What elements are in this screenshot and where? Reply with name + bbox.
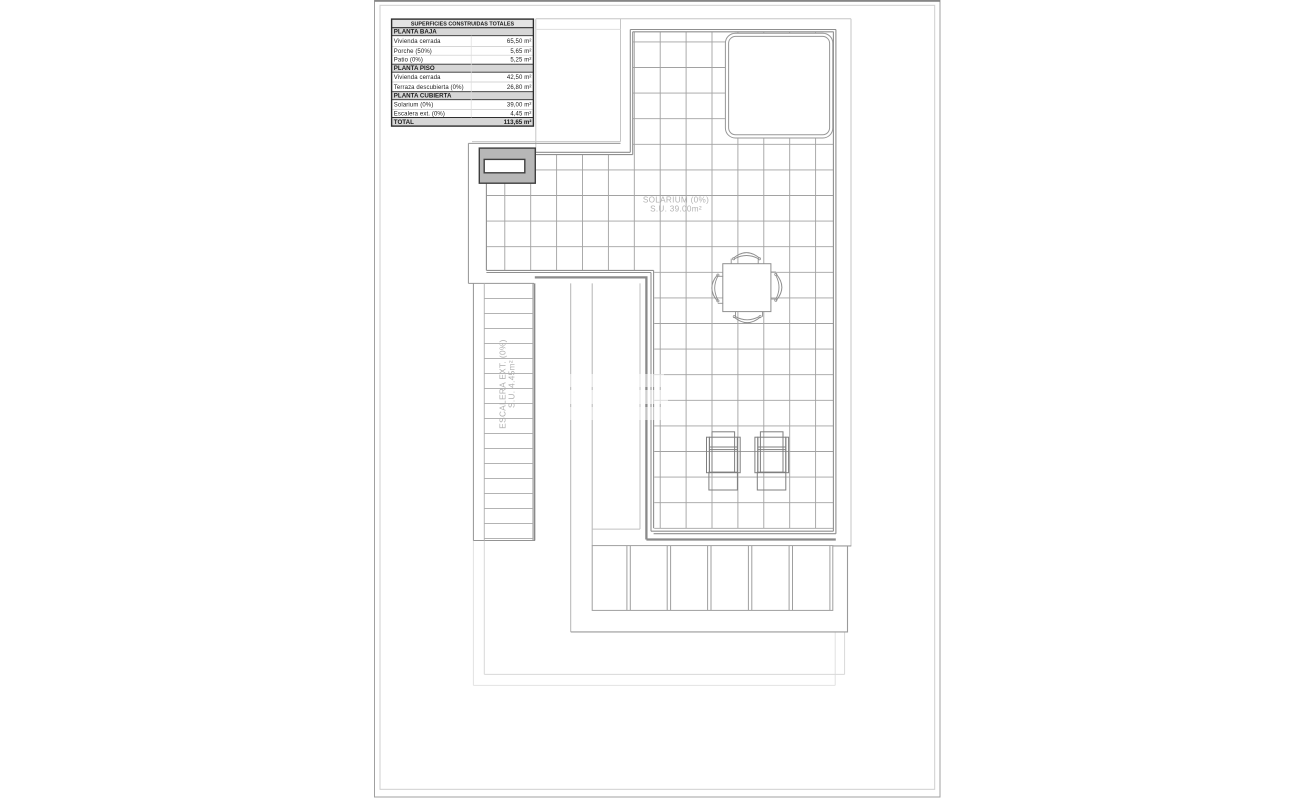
svg-text:5,25 m²: 5,25 m² — [510, 58, 531, 64]
svg-text:S.U. 39.00m²: S.U. 39.00m² — [650, 204, 702, 213]
svg-text:Patio (0%): Patio (0%) — [394, 58, 423, 64]
svg-text:PLANTA PISO: PLANTA PISO — [394, 65, 435, 72]
svg-text:65,50 m²: 65,50 m² — [507, 39, 532, 45]
svg-text:Escalera ext. (0%): Escalera ext. (0%) — [394, 112, 445, 118]
svg-text:Solarium (0%): Solarium (0%) — [394, 103, 434, 109]
svg-text:Vivienda cerrada: Vivienda cerrada — [394, 39, 441, 45]
svg-text:5,65 m²: 5,65 m² — [510, 49, 531, 55]
svg-text:PLANTA CUBIERTA: PLANTA CUBIERTA — [394, 93, 452, 100]
svg-text:113,65 m²: 113,65 m² — [504, 119, 532, 126]
svg-text:Porche (50%): Porche (50%) — [394, 49, 432, 55]
svg-text:PLANTA BAJA: PLANTA BAJA — [394, 29, 437, 36]
svg-text:26,80 m²: 26,80 m² — [507, 85, 532, 91]
svg-text:S.U. 4.45m²: S.U. 4.45m² — [508, 360, 517, 408]
svg-text:39,00 m²: 39,00 m² — [507, 103, 532, 109]
svg-text:SUPERFICIES CONSTRUIDAS TOTALE: SUPERFICIES CONSTRUIDAS TOTALES — [411, 21, 515, 27]
svg-text:Vivienda cerrada: Vivienda cerrada — [394, 75, 441, 81]
svg-text:SOLARIUM (0%): SOLARIUM (0%) — [643, 196, 709, 205]
svg-text:Terraza descubierta (0%): Terraza descubierta (0%) — [394, 85, 464, 91]
svg-text:ESCALERA EXT. (0%): ESCALERA EXT. (0%) — [499, 339, 508, 429]
svg-text:TOTAL: TOTAL — [394, 119, 414, 126]
svg-text:4,45 m²: 4,45 m² — [510, 112, 531, 118]
svg-text:42,50 m²: 42,50 m² — [507, 75, 532, 81]
